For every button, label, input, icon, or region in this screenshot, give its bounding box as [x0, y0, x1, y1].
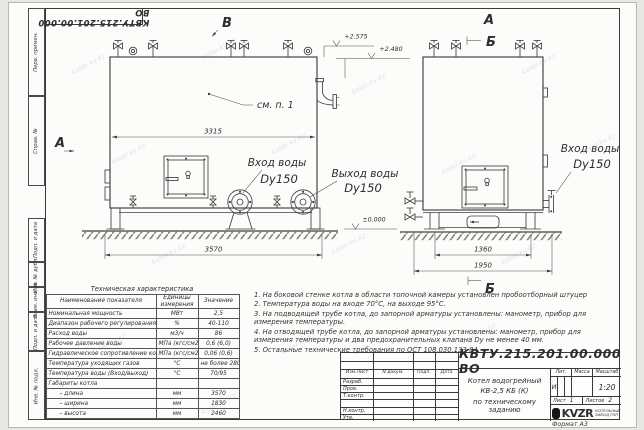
rev-col-data: Дата: [435, 370, 458, 375]
lit-label: Лит.: [551, 369, 572, 376]
sheets-label: Листов: [583, 398, 605, 404]
spec-row: Гидравлическое сопротивление котлаМПа (к…: [46, 349, 239, 359]
doc-number-rotated-box: КВТУ.215.201.00.000 ВО: [45, 8, 143, 25]
scale-label: Масштаб: [593, 369, 621, 376]
role-tkontr: Т.контр.: [343, 393, 365, 399]
spec-row: Расход водым3/ч86: [46, 329, 239, 339]
spec-row: Номинальная мощностьМВт2,5: [46, 309, 239, 319]
format-note: Формат А3: [552, 421, 588, 428]
spec-col-name: Наименование показателя: [46, 295, 156, 309]
spec-row: Рабочее давление водыМПа (кгс/см2)0,6 (6…: [46, 339, 239, 349]
spec-row: Диапазон рабочего регулирования%40-110: [46, 319, 239, 329]
kvzr-brand: KVZR: [562, 407, 593, 420]
kvzr-logo-icon: [552, 408, 560, 419]
role-utv: Утв.: [343, 415, 354, 421]
spec-row: Температура уходящих газов°Сне более 280: [46, 359, 239, 369]
sidebar-label: Перв. примен.: [33, 32, 39, 72]
note-item: 4. На отводящей трубе котла, до запорной…: [254, 328, 618, 345]
brand-line2: ЗАВОД РЭП: [595, 413, 620, 417]
role-prov: Пров.: [343, 386, 358, 392]
spec-table-title: Техническая характеристика: [46, 283, 239, 294]
lit-value: И: [551, 377, 558, 397]
rev-col-izm: Изм.Лист: [341, 370, 373, 375]
product-name: Котел водогрейный КВ-2,5 КБ (К) по техни…: [458, 369, 551, 421]
spec-row: – высотамм2460: [46, 409, 239, 419]
spec-col-value: Значение: [198, 295, 239, 309]
sidebar-label: Справ. №: [33, 128, 39, 154]
rev-col-podp: Подп.: [413, 370, 435, 375]
sidebar-cell-podp-data-1: Подп. и дата: [28, 218, 45, 262]
role-nkontr: Н.контр.: [343, 408, 365, 414]
spec-row: – ширинамм1830: [46, 399, 239, 409]
note-item: 1. На боковой стенке котла в области топ…: [254, 291, 618, 299]
sheet-value: 1: [566, 397, 574, 404]
title-block: Изм.Лист N докум. Подп. Дата Разраб. Про…: [340, 352, 620, 420]
sidebar-label: Подп. и дата: [33, 222, 39, 258]
note-item: 2. Температура воды на входе 70°С, на вы…: [254, 300, 618, 308]
role-razrab: Разраб.: [343, 379, 363, 385]
title-doc-number: КВТУ.215.201.00.000 ВО: [458, 353, 621, 369]
spec-row: Габариты котла: [46, 379, 239, 389]
spec-row: – длинамм3570: [46, 389, 239, 399]
product-line3: по техническому заданию: [459, 398, 550, 414]
spec-table: Техническая характеристика Наименование …: [46, 283, 239, 419]
sheet-label: Лист: [551, 398, 566, 404]
sidebar-cell-sprav-no: Справ. №: [28, 96, 45, 186]
title-right-info: Лит. Масса Масштаб И 1:20 Лист 1 Листов …: [551, 369, 621, 421]
spec-col-unit: Единицы измерения: [156, 295, 198, 309]
sidebar-cell-inv-podl: Инв. № подл.: [28, 351, 45, 420]
spec-header-row: Наименование показателя Единицы измерени…: [46, 295, 239, 309]
company-logo: KVZR КОТЕЛЬНЫЙ ЗАВОД РЭП: [551, 405, 621, 421]
note-item: 3. На подводящей трубе котла, до запорно…: [254, 310, 618, 327]
doc-number-rotated: КВТУ.215.201.00.000 ВО: [38, 7, 149, 27]
sidebar-label: Инв. № подл.: [33, 367, 39, 404]
drawing-sheet: kotel-kv.kz kotel-kv.kz kotel-kv.kz kote…: [0, 0, 644, 430]
sheets-value: 2: [604, 397, 612, 404]
scale-value: 1:20: [593, 377, 621, 397]
mass-value: [572, 377, 593, 397]
product-line2: КВ-2,5 КБ (К): [480, 387, 528, 395]
product-line1: Котел водогрейный: [468, 377, 542, 385]
mass-label: Масса: [572, 369, 593, 376]
spec-row: Температура воды (Вход/выход)°С70/95: [46, 369, 239, 379]
rev-col-ndok: N докум.: [373, 370, 413, 375]
sidebar-label: Подп. и дата: [33, 313, 39, 349]
sidebar-cell-podp-data-2: Подп. и дата: [28, 312, 45, 351]
sidebar-cell-vzam-inv: Взам. инв. №: [28, 287, 45, 312]
